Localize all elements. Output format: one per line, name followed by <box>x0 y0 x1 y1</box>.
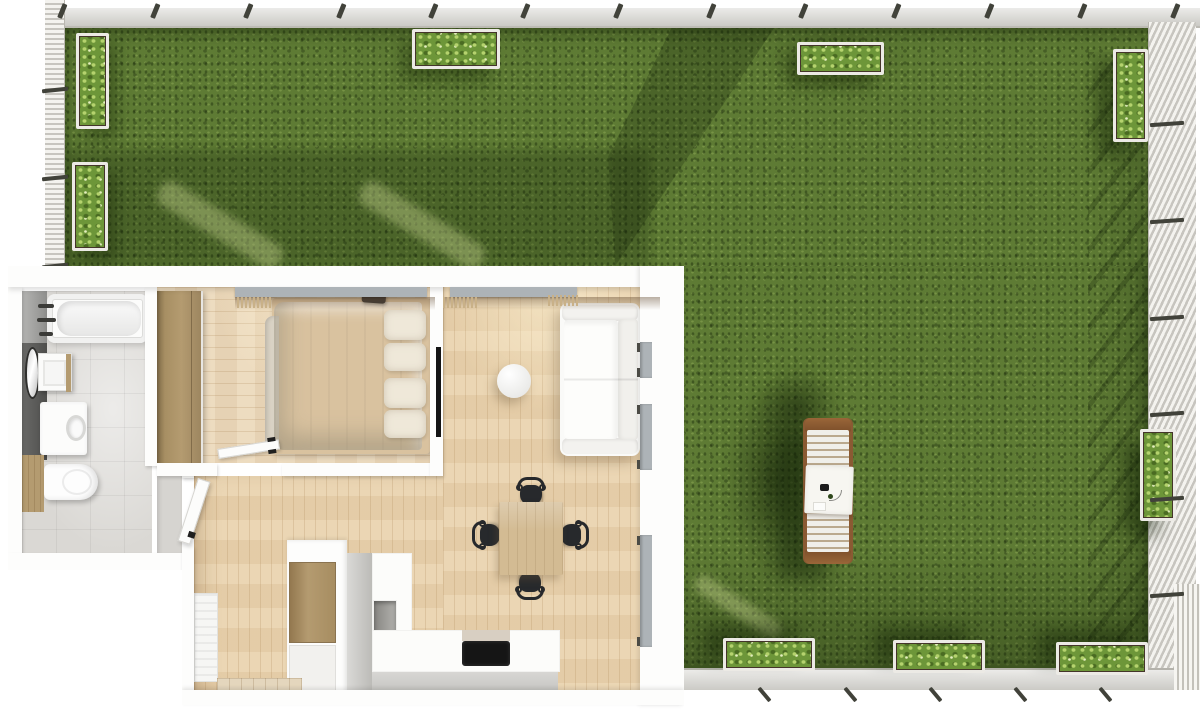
wall-tv <box>436 347 441 437</box>
cabinet-wood-front <box>289 562 336 643</box>
basin-bowl <box>43 360 66 386</box>
window-jamb <box>637 460 640 469</box>
bed-pillow <box>384 378 426 408</box>
planter-foliage <box>416 33 496 65</box>
coffee-table <box>497 364 531 398</box>
planter-bottom-2 <box>893 640 985 673</box>
window-glass-east <box>640 342 652 378</box>
radiator <box>194 593 218 682</box>
window-glass-east <box>640 535 652 647</box>
window-jamb <box>637 637 640 646</box>
bathtub-basin <box>57 301 141 336</box>
planter-foliage <box>727 642 811 667</box>
wall-bedroom-south <box>157 463 217 476</box>
cooktop-backsplash <box>462 630 510 641</box>
window-jamb <box>637 343 640 352</box>
bed-pillow <box>384 410 426 438</box>
door-handle <box>267 437 276 442</box>
curtain-fringe <box>237 297 271 308</box>
wall-north <box>8 266 684 287</box>
planter-foliage <box>1144 433 1172 517</box>
planter-foliage <box>76 166 104 247</box>
sofa <box>560 303 640 456</box>
bathtub <box>47 294 148 343</box>
planter-top-2 <box>797 42 884 75</box>
planter-bottom-1 <box>723 638 815 671</box>
planter-left-1 <box>76 33 109 129</box>
phone <box>820 484 829 491</box>
card <box>813 502 826 511</box>
washing-machine <box>40 402 87 455</box>
planter-foliage <box>1060 646 1144 671</box>
sofa-armrest <box>562 438 638 454</box>
wall-bathroom-bedroom <box>145 287 157 466</box>
counter-side-panel <box>347 553 372 703</box>
planter-foliage <box>80 37 105 125</box>
cooktop <box>462 641 510 666</box>
planter-foliage <box>801 46 880 71</box>
planter-foliage <box>1117 53 1144 138</box>
bed-pillow <box>384 343 426 371</box>
wall-bathroom-south <box>8 553 182 570</box>
planter-right-2 <box>1140 429 1176 521</box>
towel-rail <box>37 318 56 322</box>
chair-seat <box>561 524 581 546</box>
window-jamb <box>637 536 640 545</box>
towel-rail <box>38 304 54 308</box>
wall-south <box>182 690 684 705</box>
wall-west <box>8 287 22 570</box>
wall-hall-west <box>182 546 194 690</box>
wall-bedroom-south <box>282 463 430 476</box>
curtain-fringe <box>548 295 578 306</box>
window-jamb <box>637 368 640 377</box>
window-glass-north <box>235 287 427 297</box>
planter-left-2 <box>72 162 108 251</box>
wardrobe-seam <box>191 291 192 466</box>
planter-foliage <box>897 644 981 669</box>
lounger-footrest <box>805 550 851 564</box>
wardrobe <box>157 291 203 466</box>
fence-corner <box>1174 584 1200 690</box>
window-glass-east <box>640 404 652 470</box>
toilet <box>44 464 98 500</box>
dining-table <box>499 502 563 575</box>
basin-shelf <box>66 354 71 392</box>
dining-chair <box>472 520 502 550</box>
planter-bottom-3 <box>1056 642 1148 675</box>
floor-plan-render <box>0 0 1200 709</box>
sun-lounger <box>803 418 853 564</box>
washer-door <box>66 415 86 441</box>
toilet-seat <box>62 469 92 495</box>
dining-chair <box>559 520 589 550</box>
bed-pillow <box>384 310 426 340</box>
window-jamb <box>637 405 640 414</box>
fence-top <box>55 8 1200 28</box>
chair-seat <box>519 572 541 592</box>
fence-left <box>45 0 65 266</box>
planter-top-1 <box>412 29 500 69</box>
sofa-seat <box>564 320 618 439</box>
toilet-wood-panel <box>22 455 44 512</box>
planter-right-1 <box>1113 49 1148 142</box>
curtain-fringe <box>443 297 477 308</box>
chair-seat <box>480 524 500 546</box>
towel-rail <box>39 332 53 336</box>
sofa-backrest <box>618 319 638 440</box>
washbasin <box>38 353 72 391</box>
